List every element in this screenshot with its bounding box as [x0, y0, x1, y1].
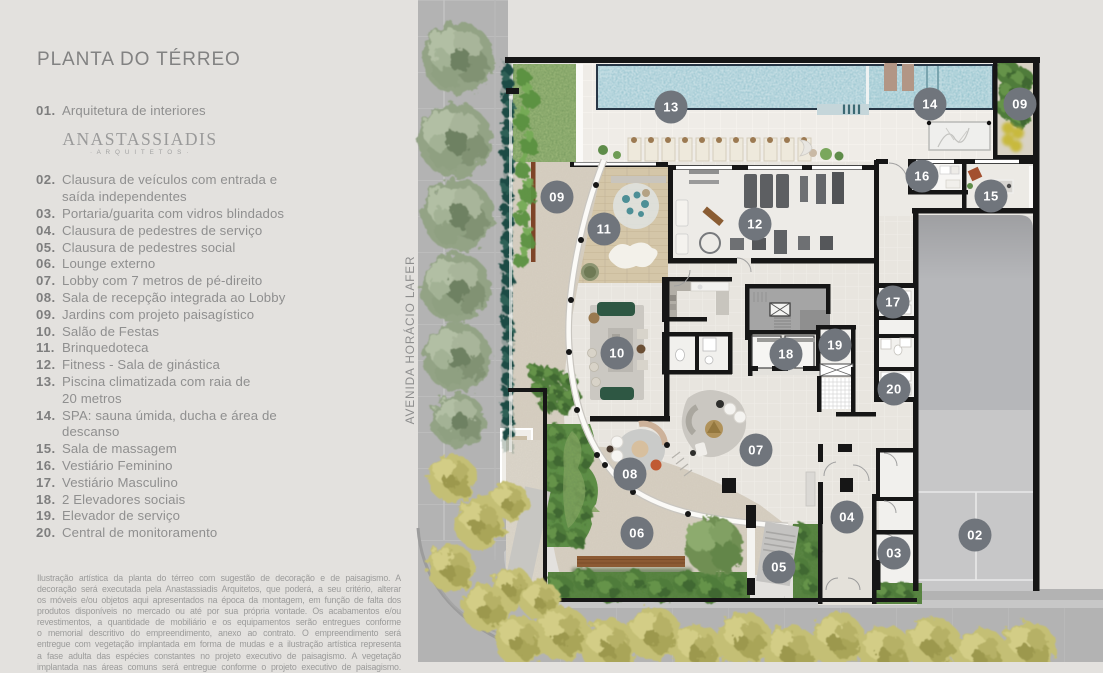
svg-text:11: 11 [597, 222, 612, 237]
svg-text:05: 05 [771, 560, 786, 575]
svg-text:12: 12 [747, 217, 762, 232]
svg-text:20: 20 [886, 382, 901, 397]
svg-text:19: 19 [827, 338, 842, 353]
svg-text:13: 13 [663, 100, 678, 115]
svg-text:18: 18 [778, 347, 793, 362]
svg-text:15: 15 [983, 189, 998, 204]
svg-text:14: 14 [922, 97, 938, 112]
svg-text:09: 09 [549, 190, 564, 205]
svg-text:10: 10 [609, 346, 624, 361]
svg-text:07: 07 [748, 443, 763, 458]
svg-text:03: 03 [886, 546, 901, 561]
svg-text:AVENIDA HORÁCIO LAFER: AVENIDA HORÁCIO LAFER [403, 256, 417, 425]
svg-text:04: 04 [839, 510, 855, 525]
svg-text:16: 16 [914, 169, 929, 184]
svg-text:08: 08 [622, 467, 637, 482]
svg-text:09: 09 [1012, 97, 1027, 112]
svg-text:06: 06 [629, 526, 644, 541]
svg-text:17: 17 [885, 295, 900, 310]
svg-text:02: 02 [967, 528, 982, 543]
